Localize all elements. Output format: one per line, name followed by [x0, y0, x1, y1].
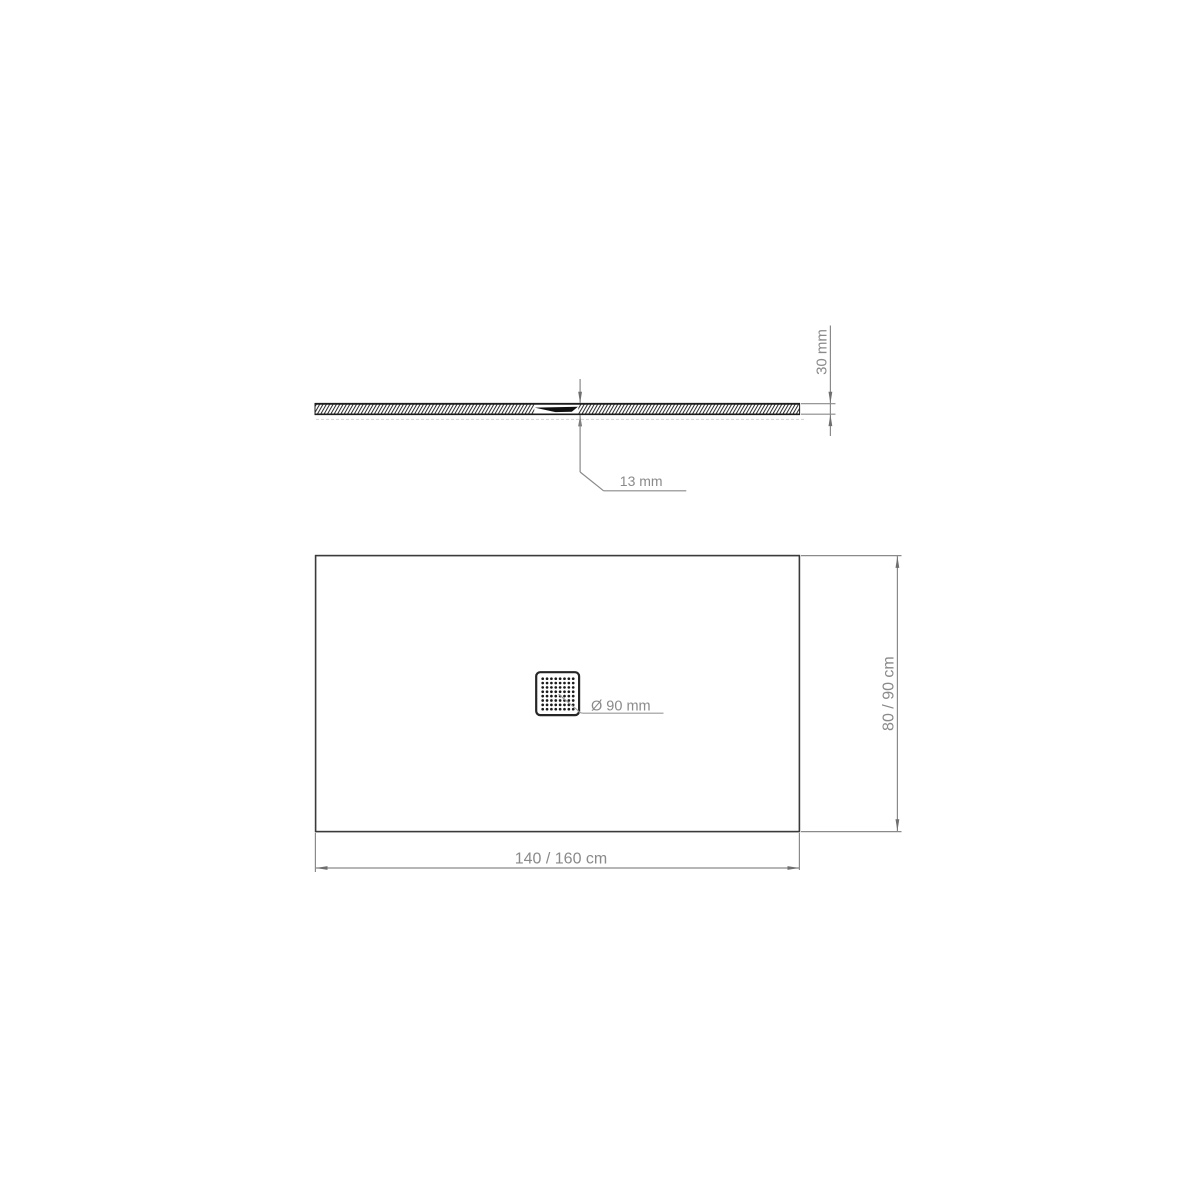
svg-text:13 mm: 13 mm [620, 473, 663, 489]
svg-text:140 / 160 cm: 140 / 160 cm [515, 851, 608, 868]
svg-text:80 / 90 cm: 80 / 90 cm [881, 656, 898, 731]
svg-text:30 mm: 30 mm [814, 329, 831, 375]
svg-text:Ø 90 mm: Ø 90 mm [591, 699, 651, 715]
